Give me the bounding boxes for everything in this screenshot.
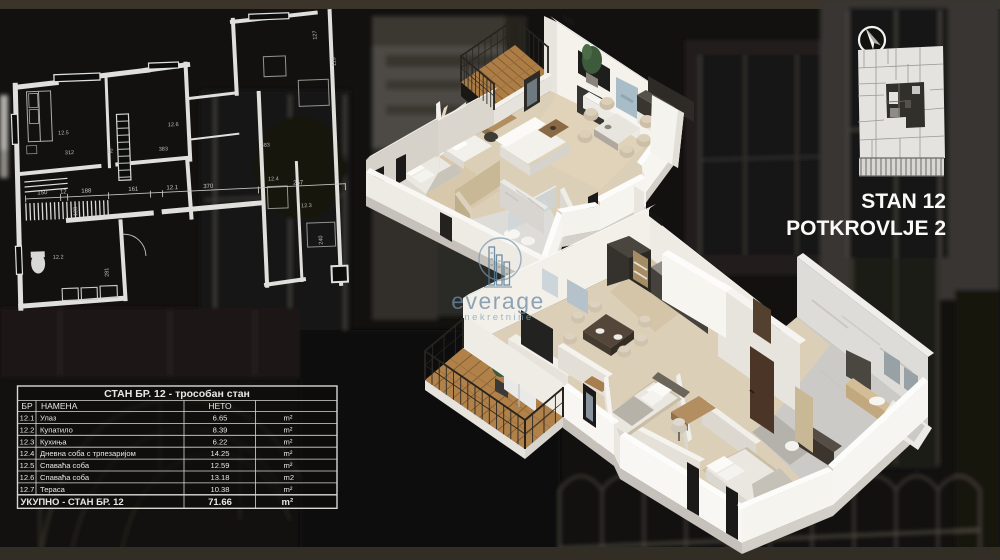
svg-text:Улаз: Улаз [40,414,57,423]
svg-text:m²: m² [284,461,293,470]
svg-text:12.3: 12.3 [20,437,35,446]
svg-text:12.4: 12.4 [268,176,279,182]
svg-text:m²: m² [284,437,293,446]
svg-text:10.38: 10.38 [210,485,229,494]
svg-text:Спаваћа соба: Спаваћа соба [40,461,90,470]
svg-text:m2: m2 [284,473,295,482]
svg-text:12.3: 12.3 [301,203,312,209]
svg-text:12.1: 12.1 [20,414,35,423]
svg-text:6.22: 6.22 [213,437,228,446]
svg-text:71.66: 71.66 [208,497,232,508]
svg-text:188: 188 [81,188,92,194]
svg-text:БР: БР [21,401,33,411]
svg-text:150: 150 [37,190,48,196]
svg-text:m²: m² [284,485,293,494]
svg-text:119: 119 [331,57,337,66]
svg-text:12: 12 [107,149,113,155]
svg-text:Кухиња: Кухиња [40,437,67,446]
svg-text:m²: m² [284,414,293,423]
svg-text:everage: everage [451,288,545,314]
svg-text:161: 161 [128,187,139,193]
svg-text:nekretnine: nekretnine [464,312,533,323]
svg-text:8.39: 8.39 [213,425,228,434]
svg-text:12.59: 12.59 [210,461,229,470]
svg-text:6.65: 6.65 [213,414,228,423]
svg-text:383: 383 [261,143,270,149]
svg-text:m²: m² [282,497,294,508]
svg-text:STAN 12: STAN 12 [861,190,946,213]
svg-text:127: 127 [312,30,318,39]
svg-text:12.6: 12.6 [20,473,35,482]
svg-text:12.2: 12.2 [20,425,35,434]
svg-text:12: 12 [60,189,68,195]
svg-text:128: 128 [73,207,79,216]
svg-text:Тераса: Тераса [40,485,66,494]
svg-text:14.25: 14.25 [210,449,229,458]
svg-text:Купатило: Купатило [40,425,73,434]
svg-text:СТАН БР. 12 - трособан стан: СТАН БР. 12 - трособан стан [104,388,250,400]
svg-text:12.2: 12.2 [53,255,64,261]
svg-text:383: 383 [159,146,168,152]
svg-text:12.7: 12.7 [20,485,35,494]
svg-text:НЕТО: НЕТО [208,401,232,411]
svg-text:267: 267 [293,180,304,186]
svg-text:Дневна соба с трпезаријом: Дневна соба с трпезаријом [40,449,136,458]
svg-text:m²: m² [284,449,293,458]
svg-text:Спаваћа соба: Спаваћа соба [40,473,90,482]
svg-text:12.6: 12.6 [168,122,179,128]
svg-text:m²: m² [284,425,293,434]
svg-text:312: 312 [65,150,74,156]
svg-text:12.5: 12.5 [20,461,35,470]
svg-text:12.1: 12.1 [166,185,179,191]
svg-text:12.4: 12.4 [20,449,35,458]
svg-text:POTKROVLJE 2: POTKROVLJE 2 [786,217,946,240]
svg-text:370: 370 [203,184,214,190]
svg-text:13.18: 13.18 [210,473,229,482]
svg-text:240: 240 [318,235,324,244]
svg-text:УКУПНО - СТАН БР. 12: УКУПНО - СТАН БР. 12 [21,497,124,508]
svg-text:281: 281 [104,268,110,277]
svg-text:12.5: 12.5 [58,130,69,136]
svg-text:НАМЕНА: НАМЕНА [41,401,78,411]
